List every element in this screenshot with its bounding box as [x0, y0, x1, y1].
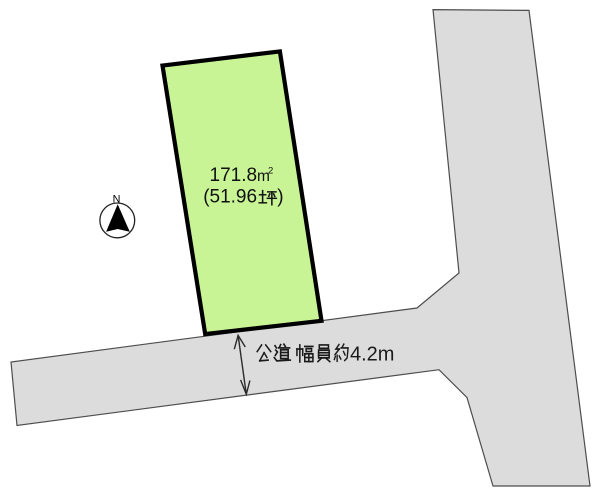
svg-text:171.8m2: 171.8m2	[210, 165, 274, 186]
svg-text:(51.96: (51.96	[203, 186, 257, 207]
svg-text:4.2m: 4.2m	[350, 344, 394, 366]
svg-text:): )	[277, 186, 283, 207]
